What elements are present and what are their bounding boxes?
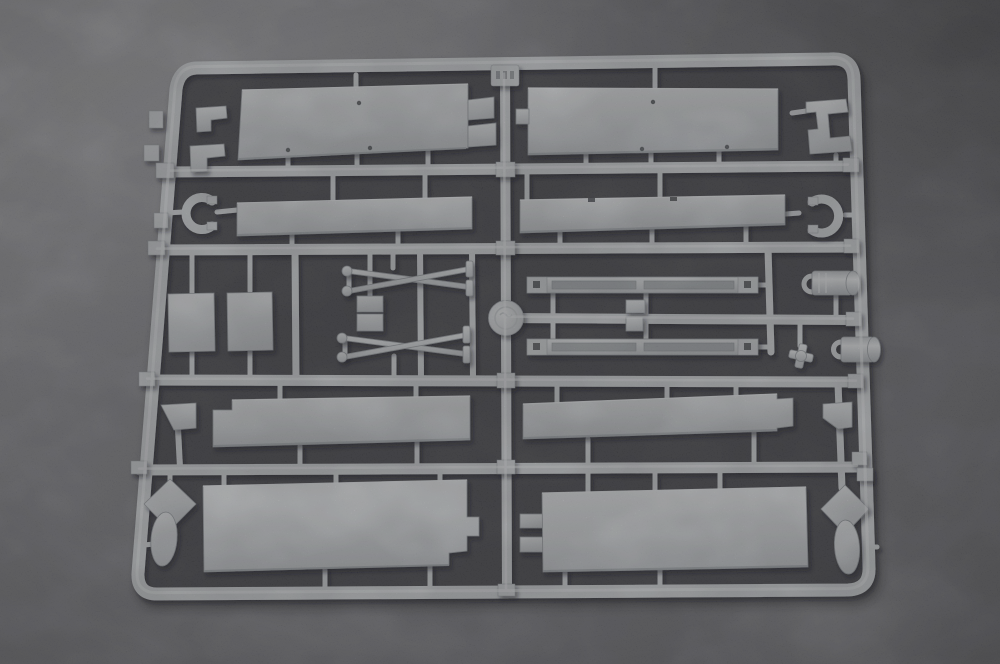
sprue-scene-svg (0, 0, 1000, 664)
photo-model-kit-sprue (0, 0, 1000, 664)
film-grain (0, 0, 1000, 664)
